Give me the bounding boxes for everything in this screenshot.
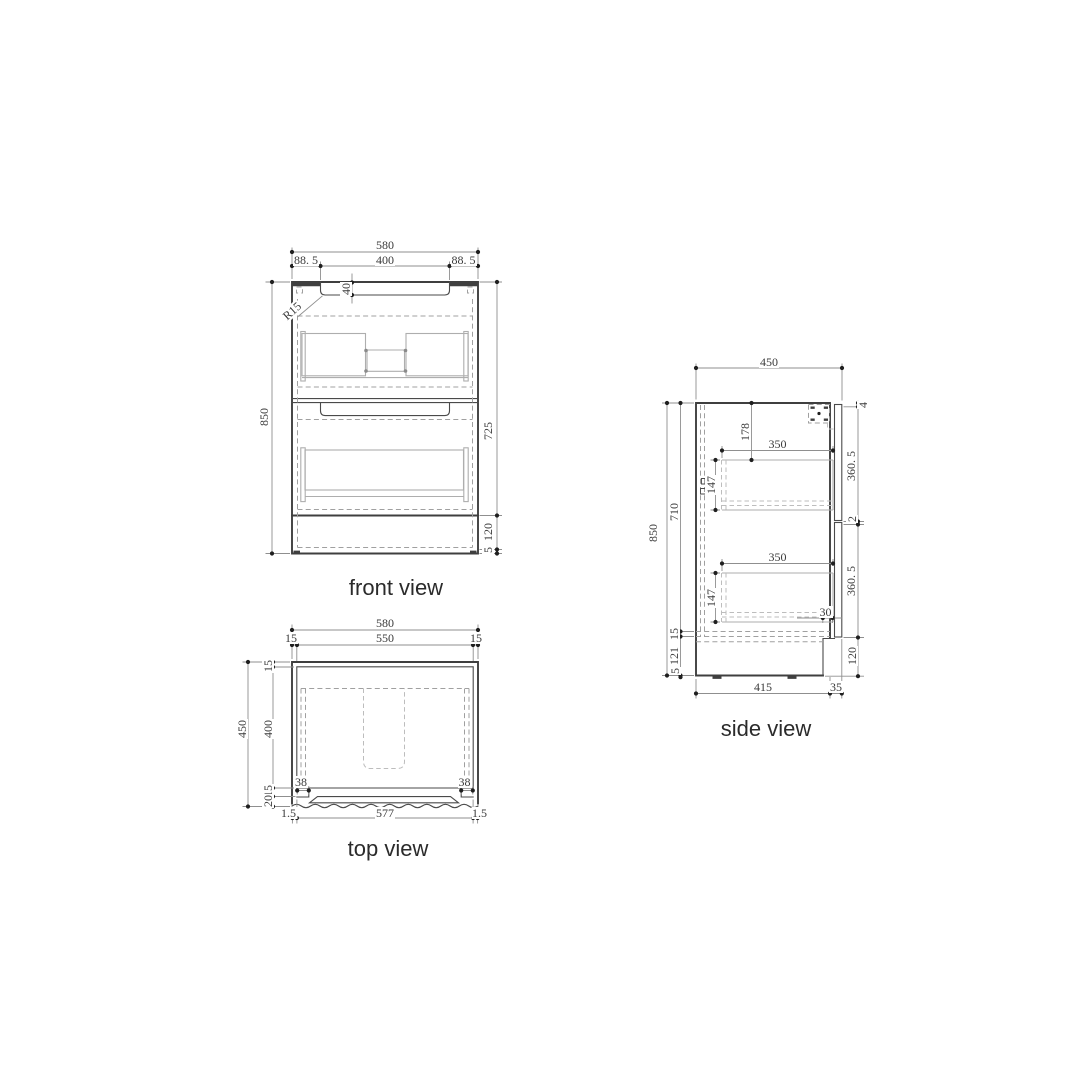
dim-topview-overall-width: 580 (375, 617, 395, 629)
dim-front-right-offset: 88. 5 (451, 254, 477, 266)
dim-side-drawer-depth-top: 350 (768, 438, 788, 450)
front-view-label: front view (349, 575, 443, 601)
dim-side-overall-height: 850 (647, 523, 659, 543)
vanity-technical-drawing: 580 88. 5 400 88. 5 40 R15 850 725 120 5… (0, 0, 1080, 1080)
side-view-label: side view (721, 716, 811, 742)
dim-side-front-top: 360. 5 (845, 450, 857, 482)
dim-side-carcass-height: 710 (668, 502, 680, 522)
dim-side-top-to-drawer: 178 (739, 422, 751, 442)
dim-front-kick-height: 120 (482, 522, 494, 542)
dim-topview-wall-right: 15 (469, 632, 483, 644)
dim-front-body-height: 725 (482, 421, 494, 441)
dim-front-overall-width: 580 (375, 239, 395, 251)
dim-front-handle-depth: 40 (340, 282, 352, 296)
dim-topview-edge-right: 1.5 (471, 807, 488, 819)
dim-side-kick-inner: 121 (668, 646, 680, 666)
dim-side-front-gap: 2 (846, 515, 858, 523)
dim-side-front-offset: 35 (829, 681, 843, 693)
top-view-drawing (243, 625, 481, 824)
dim-front-base-gap: 5 (482, 546, 494, 554)
dim-side-top-gap: 4 (857, 401, 869, 409)
side-view-drawing (662, 364, 864, 699)
dim-front-overall-height: 850 (258, 407, 270, 427)
dim-side-drawer-depth-bottom: 350 (768, 551, 788, 563)
drawing-linework (0, 0, 1080, 1080)
dim-side-kick-height: 120 (846, 646, 858, 666)
dim-topview-back-wall: 15 (262, 659, 274, 673)
dim-topview-overall-depth: 450 (236, 719, 248, 739)
dim-side-base-depth: 415 (753, 681, 773, 693)
top-view-label: top view (348, 836, 429, 862)
dim-topview-front-edge: 20 (262, 794, 274, 808)
dim-topview-inner-depth: 400 (262, 719, 274, 739)
dim-side-drawer-height-top: 147 (705, 475, 717, 495)
dim-front-left-offset: 88. 5 (293, 254, 319, 266)
dim-topview-edge-left: 1.5 (280, 807, 297, 819)
dim-topview-inner-width: 550 (375, 632, 395, 644)
dim-side-bottom-panel: 15 (668, 627, 680, 641)
dim-topview-wall-left: 15 (284, 632, 298, 644)
dim-side-drawer-height-bottom: 147 (705, 588, 717, 608)
dim-side-overall-depth: 450 (759, 356, 779, 368)
dim-side-base-gap: 5 (669, 667, 681, 675)
dim-side-front-bottom: 360. 5 (845, 565, 857, 597)
front-view-drawing (266, 248, 503, 556)
dim-topview-bottom-width: 577 (375, 807, 395, 819)
dim-front-handle-width: 400 (375, 254, 395, 266)
dim-side-recess: 30 (819, 606, 833, 618)
dim-topview-corner-left: 38 (294, 776, 308, 788)
dim-topview-corner-right: 38 (458, 776, 472, 788)
